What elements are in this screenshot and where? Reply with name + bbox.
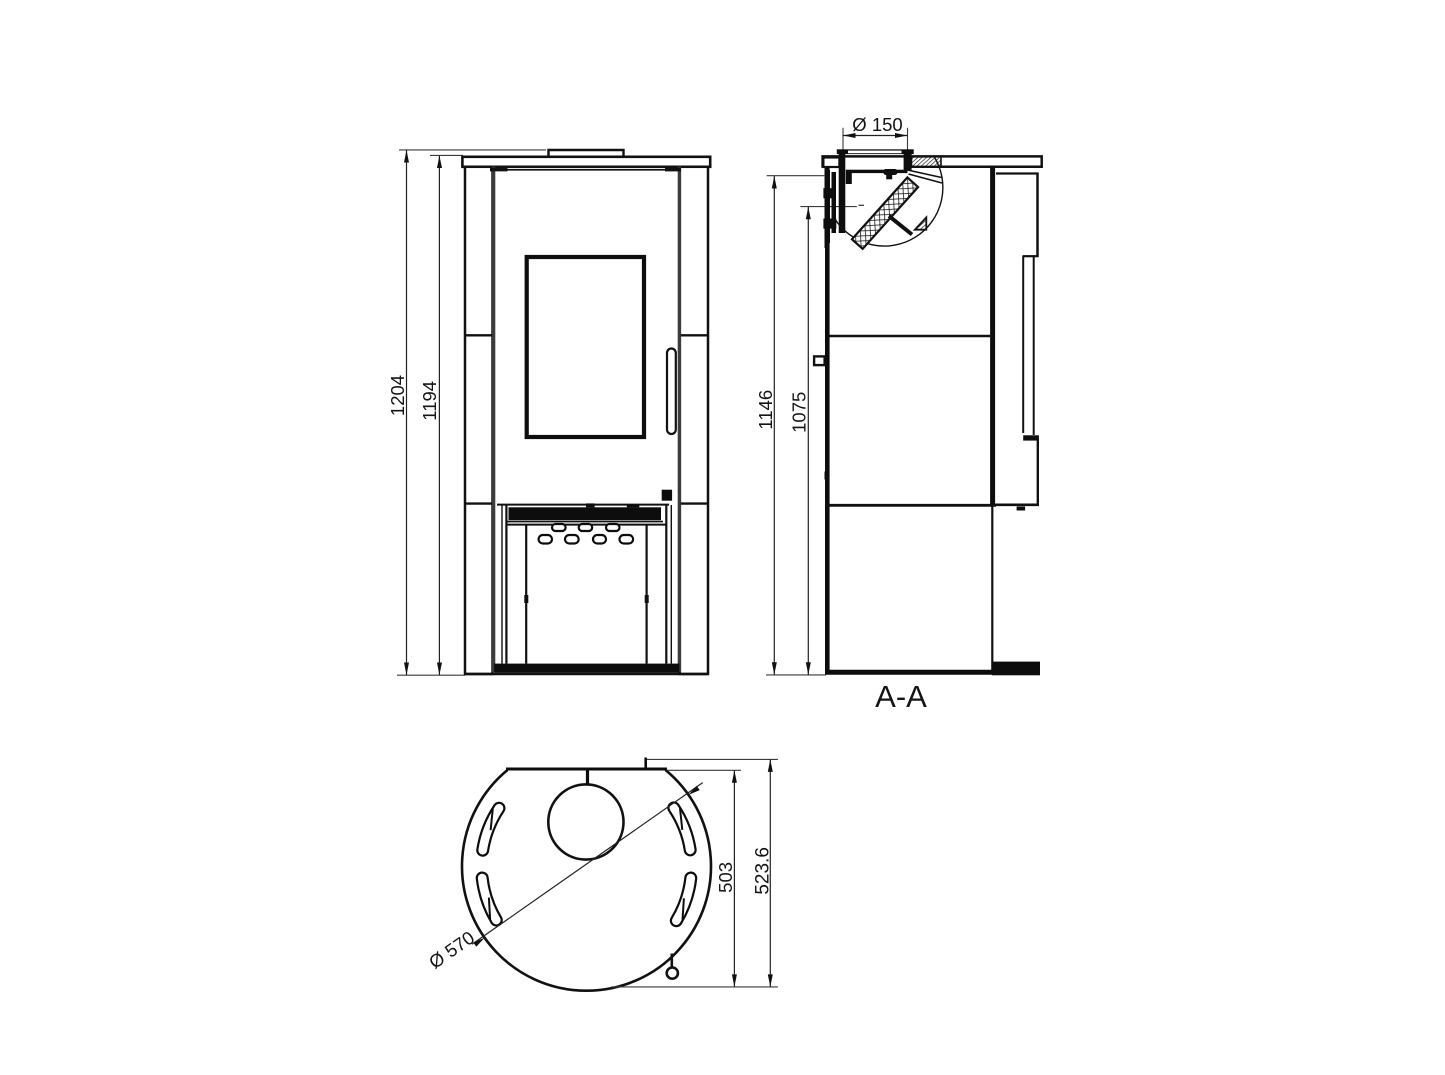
svg-text:1146: 1146	[755, 390, 776, 430]
svg-text:503: 503	[715, 862, 736, 893]
svg-text:1075: 1075	[788, 392, 809, 433]
svg-text:1204: 1204	[387, 375, 408, 416]
svg-text:A-A: A-A	[875, 679, 927, 714]
svg-text:Ø 150: Ø 150	[852, 114, 902, 135]
svg-text:523.6: 523.6	[752, 847, 773, 895]
svg-text:1194: 1194	[419, 381, 440, 421]
